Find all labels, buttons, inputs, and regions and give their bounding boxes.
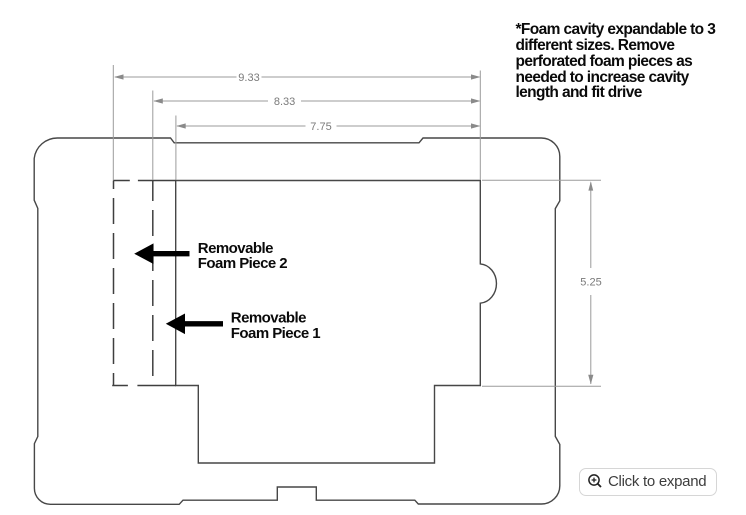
svg-text:5.25: 5.25 [580, 276, 601, 288]
svg-text:Foam Piece 1: Foam Piece 1 [231, 325, 320, 342]
svg-text:Removable: Removable [231, 309, 306, 326]
svg-text:Foam Piece 2: Foam Piece 2 [198, 255, 287, 272]
svg-text:8.33: 8.33 [274, 96, 295, 108]
svg-text:7.75: 7.75 [310, 121, 331, 133]
svg-text:9.33: 9.33 [238, 72, 259, 84]
